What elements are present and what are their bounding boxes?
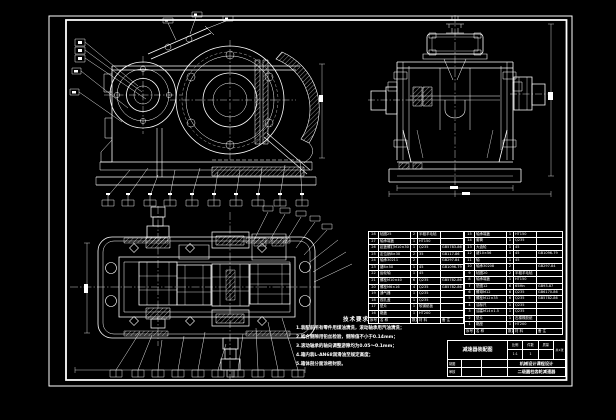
bom-cell-material <box>418 258 441 264</box>
bom-cell-name: 箱座 <box>475 322 507 327</box>
bom-cell-no: 13 <box>465 245 475 250</box>
bom-row: 20 螺栓M6×16 4 Q235 GB5782-86 <box>369 285 463 292</box>
bom-cell-qty: 2 <box>507 264 514 269</box>
bom-cell-qty: 6 <box>507 290 514 295</box>
bom-cell-note <box>441 298 463 304</box>
bom-cell-note <box>441 271 463 277</box>
cad-sheet: 28 毡圈25 2 半粗羊毛毡 27 轴承端盖 1 HT150 26 起盖螺钉M… <box>0 0 616 420</box>
bom-cell-name: 螺母M12 <box>475 290 507 295</box>
bom-cell-qty: 2 <box>411 232 418 238</box>
bom-cell-qty: 2 <box>411 258 418 264</box>
bom-cell-material: 半粗羊毛毡 <box>514 271 537 276</box>
bom-cell-no: 20 <box>369 285 379 291</box>
bom-cell-qty: 1 <box>411 239 418 245</box>
bom-cell-material: Q235 <box>418 278 441 284</box>
technical-requirement-line: 3.滚动轴承的轴向调整游隙均为0.05～0.1mm； <box>296 342 448 351</box>
checked-date <box>482 368 507 376</box>
drawn-label: 制图 <box>448 360 462 368</box>
drawn-name <box>462 360 482 368</box>
bom-cell-no: 8 <box>465 277 475 282</box>
bom-cell-name: 名 称 <box>475 329 507 334</box>
bom-cell-name: 箱盖 <box>379 311 411 317</box>
bom-cell-note <box>537 258 562 263</box>
bom-cell-qty: 2 <box>507 271 514 276</box>
bom-cell-name: 油塞M14×1.5 <box>475 309 507 314</box>
bom-cell-material: 35 <box>418 252 441 258</box>
bom-cell-name: 定位销8×30 <box>379 252 411 258</box>
bom-cell-note <box>537 309 562 314</box>
bom-cell-name: 垫圈12 <box>475 284 507 289</box>
scale-value: 1:1 <box>508 350 523 358</box>
bom-cell-material: Q235 <box>418 298 441 304</box>
bom-cell-material: 45 <box>418 271 441 277</box>
bom-cell-note: GB5782-86 <box>441 285 463 291</box>
bom-cell-note <box>441 232 463 238</box>
bom-cell-no: 3 <box>465 309 475 314</box>
bom-cell-name: 垫片 <box>379 304 411 310</box>
coupling-block <box>250 234 290 304</box>
title-block: 减速器装配图 比例 件数 质量 1:1 1 共1张 制图 <box>447 340 566 377</box>
intermediate-gear <box>177 245 211 305</box>
bom-cell-note: GB93-87 <box>537 284 562 289</box>
bom-cell-no: 10 <box>465 264 475 269</box>
bom-cell-qty: 1 <box>411 304 418 310</box>
bom-row: 23 键8×50 1 45 GB1096-79 <box>369 265 463 272</box>
bom-cell-qty: 1 <box>507 303 514 308</box>
bom-row: 24 轴承30211 2 GB297-84 <box>369 258 463 265</box>
bom-cell-name: 轴 <box>475 258 507 263</box>
bom-cell-name: 轴承端盖 <box>475 232 507 237</box>
bom-cell-material: Q235 <box>514 303 537 308</box>
bom-cell-name: 轴承30211 <box>379 258 411 264</box>
bom-cell-note <box>441 239 463 245</box>
checked-name <box>462 368 482 376</box>
bom-row: 18 视孔盖 1 Q235 <box>369 298 463 305</box>
bom-cell-material: Q235 <box>418 291 441 297</box>
bom-cell-material: Q235 <box>514 290 537 295</box>
bom-cell-no: 24 <box>369 258 379 264</box>
bom-cell-note: GB6170-86 <box>537 290 562 295</box>
bom-cell-qty: 1 <box>507 238 514 243</box>
bom-cell-note <box>537 232 562 237</box>
bom-cell-qty: 6 <box>411 278 418 284</box>
bom-cell-name: 垫片 <box>475 316 507 321</box>
bom-cell-no: 2 <box>465 316 475 321</box>
bom-cell-material: 石棉橡胶纸 <box>514 316 537 321</box>
technical-requirement-line: 2.啮合侧隙用铅丝检验，侧隙值不小于0.14mm； <box>296 333 448 342</box>
bom-cell-no: 22 <box>369 271 379 277</box>
bom-row: 19 通气器 1 Q235 <box>369 291 463 298</box>
bom-cell-note <box>537 271 562 276</box>
bom-cell-qty: 1 <box>411 311 418 317</box>
bom-cell-note: GB117-86 <box>441 252 463 258</box>
bom-cell-qty: 1 <box>507 309 514 314</box>
technical-requirement-line: 4.箱内装L-AN68润滑油至规定高度； <box>296 351 448 360</box>
bom-cell-material: 45 <box>514 258 537 263</box>
bom-cell-note <box>537 277 562 282</box>
bom-cell-qty: 数量 <box>507 329 514 334</box>
bom-cell-no: 28 <box>369 232 379 238</box>
bom-cell-no: 27 <box>369 239 379 245</box>
bom-cell-qty: 1 <box>507 277 514 282</box>
bom-row: 27 轴承端盖 1 HT150 <box>369 239 463 246</box>
bom-cell-name: 大齿轮 <box>475 245 507 250</box>
bom-cell-no: 1 <box>465 322 475 327</box>
org-line-1: 机械设计课程设计 <box>508 360 565 369</box>
bom-cell-note: GB5782-86 <box>441 278 463 284</box>
bom-cell-no: 19 <box>369 291 379 297</box>
bom-cell-no: 4 <box>465 303 475 308</box>
bom-cell-material: 材 料 <box>514 329 537 334</box>
bom-cell-material: Q235 <box>418 245 441 251</box>
bom-cell-name: 视孔盖 <box>379 298 411 304</box>
plan-view <box>70 206 320 380</box>
bom-cell-note <box>441 304 463 310</box>
bom-cell-no: 18 <box>369 298 379 304</box>
bom-cell-qty: 1 <box>411 298 418 304</box>
bom-cell-name: 起盖螺钉M10×30 <box>379 245 411 251</box>
bom-cell-note <box>537 303 562 308</box>
bom-cell-qty: 1 <box>507 251 514 256</box>
bom-cell-no: 21 <box>369 278 379 284</box>
bom-row: 25 定位销8×30 2 35 GB117-86 <box>369 252 463 259</box>
bom-cell-material: HT150 <box>514 277 537 282</box>
bom-cell-qty: 6 <box>507 296 514 301</box>
drawing-title: 减速器装配图 <box>448 341 508 359</box>
weight-value <box>539 350 553 358</box>
bom-cell-note <box>537 316 562 321</box>
bom-table-right: 15 轴承端盖 1 HT150 14 套筒 1 Q235 13 大齿轮 1 45 <box>464 231 563 335</box>
dipstick <box>148 17 226 59</box>
bom-cell-note <box>441 311 463 317</box>
output-shaft <box>212 232 249 377</box>
bom-cell-material: Q235 <box>514 238 537 243</box>
bom-cell-qty: 1 <box>411 271 418 277</box>
bom-cell-no: 序号 <box>465 329 475 334</box>
bom-cell-no: 26 <box>369 245 379 251</box>
bom-cell-material: HT200 <box>514 322 537 327</box>
bom-cell-no: 17 <box>369 304 379 310</box>
bom-cell-qty: 1 <box>411 291 418 297</box>
bom-cell-name: 螺栓M10×40 <box>379 278 411 284</box>
drawn-date <box>482 360 507 368</box>
sheet-count: 共1张 <box>554 341 565 359</box>
bom-cell-no: 9 <box>465 271 475 276</box>
bom-cell-name: 油标尺 <box>475 303 507 308</box>
bom-cell-material: Q235 <box>418 285 441 291</box>
bom-cell-qty: 1 <box>411 265 418 271</box>
bom-cell-material: HT150 <box>418 239 441 245</box>
bom-cell-material: Q235 <box>514 296 537 301</box>
bom-row: 序号 名 称 数量 材 料 备 注 <box>465 329 562 334</box>
bom-cell-material: 半粗羊毛毡 <box>418 232 441 238</box>
bom-cell-material <box>514 264 537 269</box>
bom-cell-no: 5 <box>465 296 475 301</box>
bom-cell-qty: 6 <box>507 284 514 289</box>
bom-cell-note <box>441 291 463 297</box>
checked-label: 审核 <box>448 368 462 376</box>
scale-label: 比例 <box>508 341 523 349</box>
technical-requirement-line: 1.装配前所有零件用煤油清洗，滚动轴承用汽油清洗； <box>296 324 448 333</box>
bom-cell-qty: 1 <box>507 316 514 321</box>
bom-row: 22 齿轮轴 1 45 <box>369 271 463 278</box>
bom-cell-qty: 1 <box>411 245 418 251</box>
bom-cell-name: 螺栓M12×35 <box>475 296 507 301</box>
bom-row: 26 起盖螺钉M10×30 1 Q235 GB5783-86 <box>369 245 463 252</box>
bom-cell-material: 软钢纸板 <box>418 304 441 310</box>
bom-cell-material: Q235 <box>514 309 537 314</box>
bom-cell-name: 毡圈25 <box>379 232 411 238</box>
bom-cell-note: 备 注 <box>537 329 562 334</box>
bom-cell-note: GB5782-86 <box>537 296 562 301</box>
bom-cell-qty: 4 <box>411 285 418 291</box>
weight-label: 质量 <box>539 341 553 349</box>
bom-cell-material: HT200 <box>418 311 441 317</box>
technical-requirements: 技术要求 1.装配前所有零件用煤油清洗，滚动轴承用汽油清洗； 2.啮合侧隙用铅丝… <box>296 317 448 369</box>
bom-cell-material: 45 <box>514 245 537 250</box>
bom-cell-note: GB297-84 <box>441 258 463 264</box>
bom-cell-material: 65Mn <box>514 284 537 289</box>
bom-cell-name: 套筒 <box>475 238 507 243</box>
bom-table-left: 28 毡圈25 2 半粗羊毛毡 27 轴承端盖 1 HT150 26 起盖螺钉M… <box>368 231 464 324</box>
front-view <box>96 17 325 185</box>
bom-row: 28 毡圈25 2 半粗羊毛毡 <box>369 232 463 239</box>
bom-cell-qty: 1 <box>507 232 514 237</box>
bom-cell-name: 轴承端盖 <box>379 239 411 245</box>
bom-cell-qty: 1 <box>507 245 514 250</box>
bom-cell-no: 6 <box>465 290 475 295</box>
side-view <box>368 15 554 197</box>
qty-label: 件数 <box>523 341 538 349</box>
bom-cell-qty: 1 <box>507 258 514 263</box>
bom-cell-no: 16 <box>369 311 379 317</box>
bom-cell-note <box>537 322 562 327</box>
bom-cell-no: 15 <box>465 232 475 237</box>
technical-requirements-heading: 技术要求 <box>343 317 448 324</box>
bom-row: 17 垫片 1 软钢纸板 <box>369 304 463 311</box>
bom-cell-name: 键8×50 <box>379 265 411 271</box>
bom-cell-note <box>537 245 562 250</box>
bom-cell-no: 11 <box>465 258 475 263</box>
bom-cell-name: 键10×56 <box>475 251 507 256</box>
bom-cell-material: HT150 <box>514 232 537 237</box>
bom-cell-name: 轴承端盖 <box>475 277 507 282</box>
bom-cell-material: 45 <box>418 265 441 271</box>
bom-cell-material: 45 <box>514 251 537 256</box>
bom-cell-note: GB1096-79 <box>441 265 463 271</box>
bom-cell-qty: 1 <box>507 322 514 327</box>
bom-cell-note: GB1096-79 <box>537 251 562 256</box>
bom-cell-note <box>537 238 562 243</box>
bom-cell-no: 14 <box>465 238 475 243</box>
bom-cell-name: 轴承30208 <box>475 264 507 269</box>
bom-cell-no: 7 <box>465 284 475 289</box>
bom-cell-note: GB297-84 <box>537 264 562 269</box>
technical-requirement-line: 5.箱体剖分面涂密封胶。 <box>296 360 448 369</box>
bom-cell-no: 25 <box>369 252 379 258</box>
bom-cell-qty: 2 <box>411 252 418 258</box>
bom-cell-no: 12 <box>465 251 475 256</box>
qty-value: 1 <box>523 350 538 358</box>
bom-cell-note: GB5783-86 <box>441 245 463 251</box>
bom-row: 21 螺栓M10×40 6 Q235 GB5782-86 <box>369 278 463 285</box>
bom-cell-no: 23 <box>369 265 379 271</box>
org-line-2: 二级圆柱齿轮减速器 <box>508 368 565 376</box>
bom-cell-name: 通气器 <box>379 291 411 297</box>
bom-cell-name: 毡圈20 <box>475 271 507 276</box>
bom-cell-name: 螺栓M6×16 <box>379 285 411 291</box>
bom-cell-name: 齿轮轴 <box>379 271 411 277</box>
